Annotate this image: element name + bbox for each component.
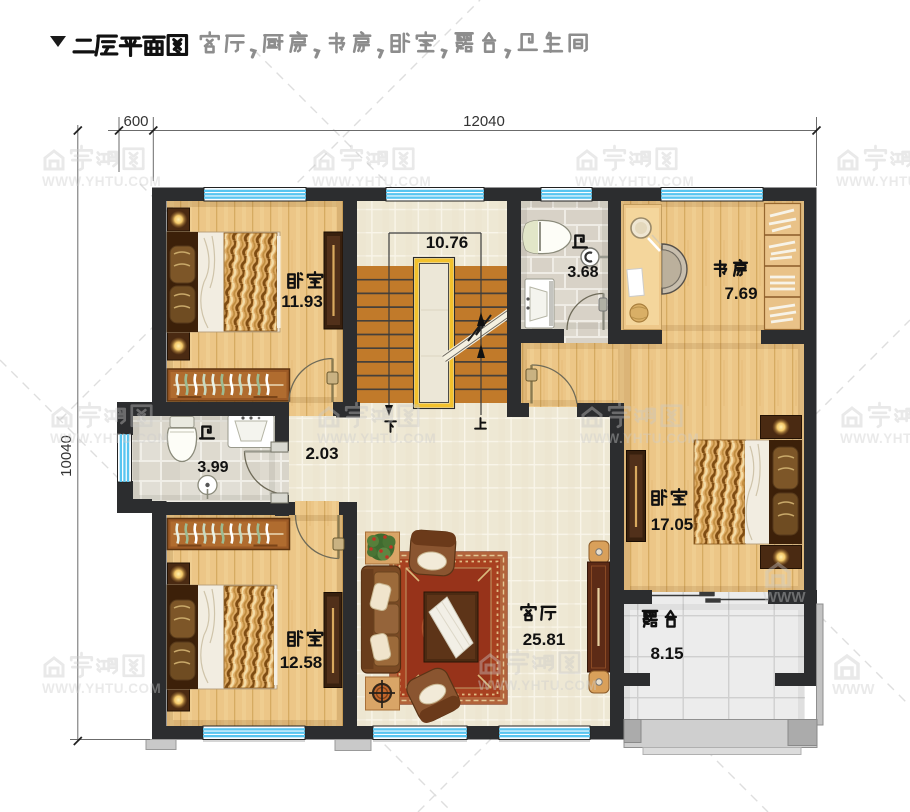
svg-text:25.81: 25.81 xyxy=(523,630,566,649)
svg-text:10.76: 10.76 xyxy=(426,233,469,252)
svg-text:8.15: 8.15 xyxy=(650,644,683,663)
svg-text:2.03: 2.03 xyxy=(305,444,338,463)
svg-text:WWW.YHTU.COM: WWW.YHTU.COM xyxy=(50,431,169,446)
svg-text:WWW.YHTU.COM: WWW.YHTU.COM xyxy=(42,681,161,696)
svg-text:WWW.YHTU.COM: WWW.YHTU.COM xyxy=(580,431,699,446)
svg-text:7.69: 7.69 xyxy=(724,284,757,303)
svg-text:WWW.YHTU.COM: WWW.YHTU.COM xyxy=(42,174,161,189)
svg-text:WWW.YHTU.COM: WWW.YHTU.COM xyxy=(312,174,431,189)
svg-text:WWW.YHTU.COM: WWW.YHTU.COM xyxy=(575,174,694,189)
svg-text:WWW.YHTU.COM: WWW.YHTU.COM xyxy=(478,678,597,693)
svg-text:3.68: 3.68 xyxy=(567,264,598,281)
svg-text:WWW.YHTU.COM: WWW.YHTU.COM xyxy=(836,174,910,189)
svg-text:WWW.YHTU.COM: WWW.YHTU.COM xyxy=(317,431,436,446)
svg-text:WWW: WWW xyxy=(763,589,806,606)
svg-text:12.58: 12.58 xyxy=(280,653,323,672)
svg-text:600: 600 xyxy=(123,113,148,130)
svg-text:12040: 12040 xyxy=(463,113,505,130)
svg-text:11.93: 11.93 xyxy=(281,292,323,311)
svg-text:WWW: WWW xyxy=(832,681,875,698)
svg-text:3.99: 3.99 xyxy=(197,459,228,476)
svg-text:17.05: 17.05 xyxy=(651,515,694,534)
svg-text:WWW.YHTU.COM: WWW.YHTU.COM xyxy=(840,431,910,446)
